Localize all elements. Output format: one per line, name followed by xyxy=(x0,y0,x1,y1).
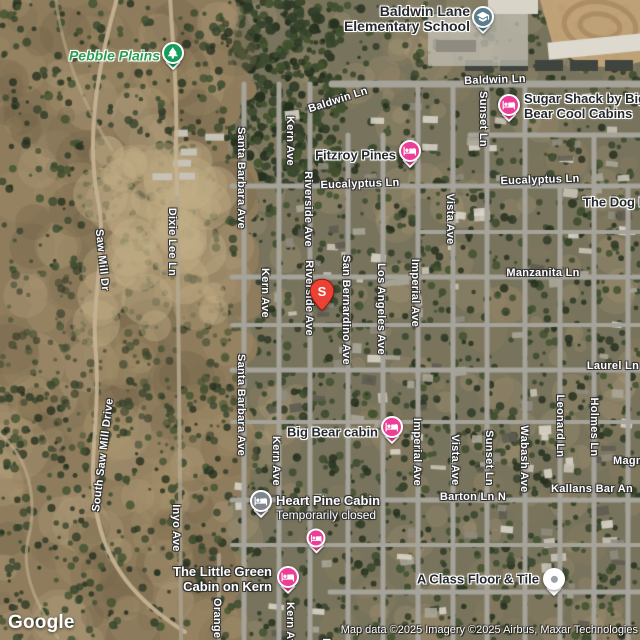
google-logo[interactable]: Google xyxy=(8,612,75,634)
satellite-map-viewport[interactable]: Baldwin LnBaldwin LnSunset LnKern AveSan… xyxy=(0,0,640,640)
map-attribution: Map data ©2025 Imagery ©2025 Airbus, Max… xyxy=(341,624,638,636)
satellite-imagery[interactable] xyxy=(0,0,640,640)
